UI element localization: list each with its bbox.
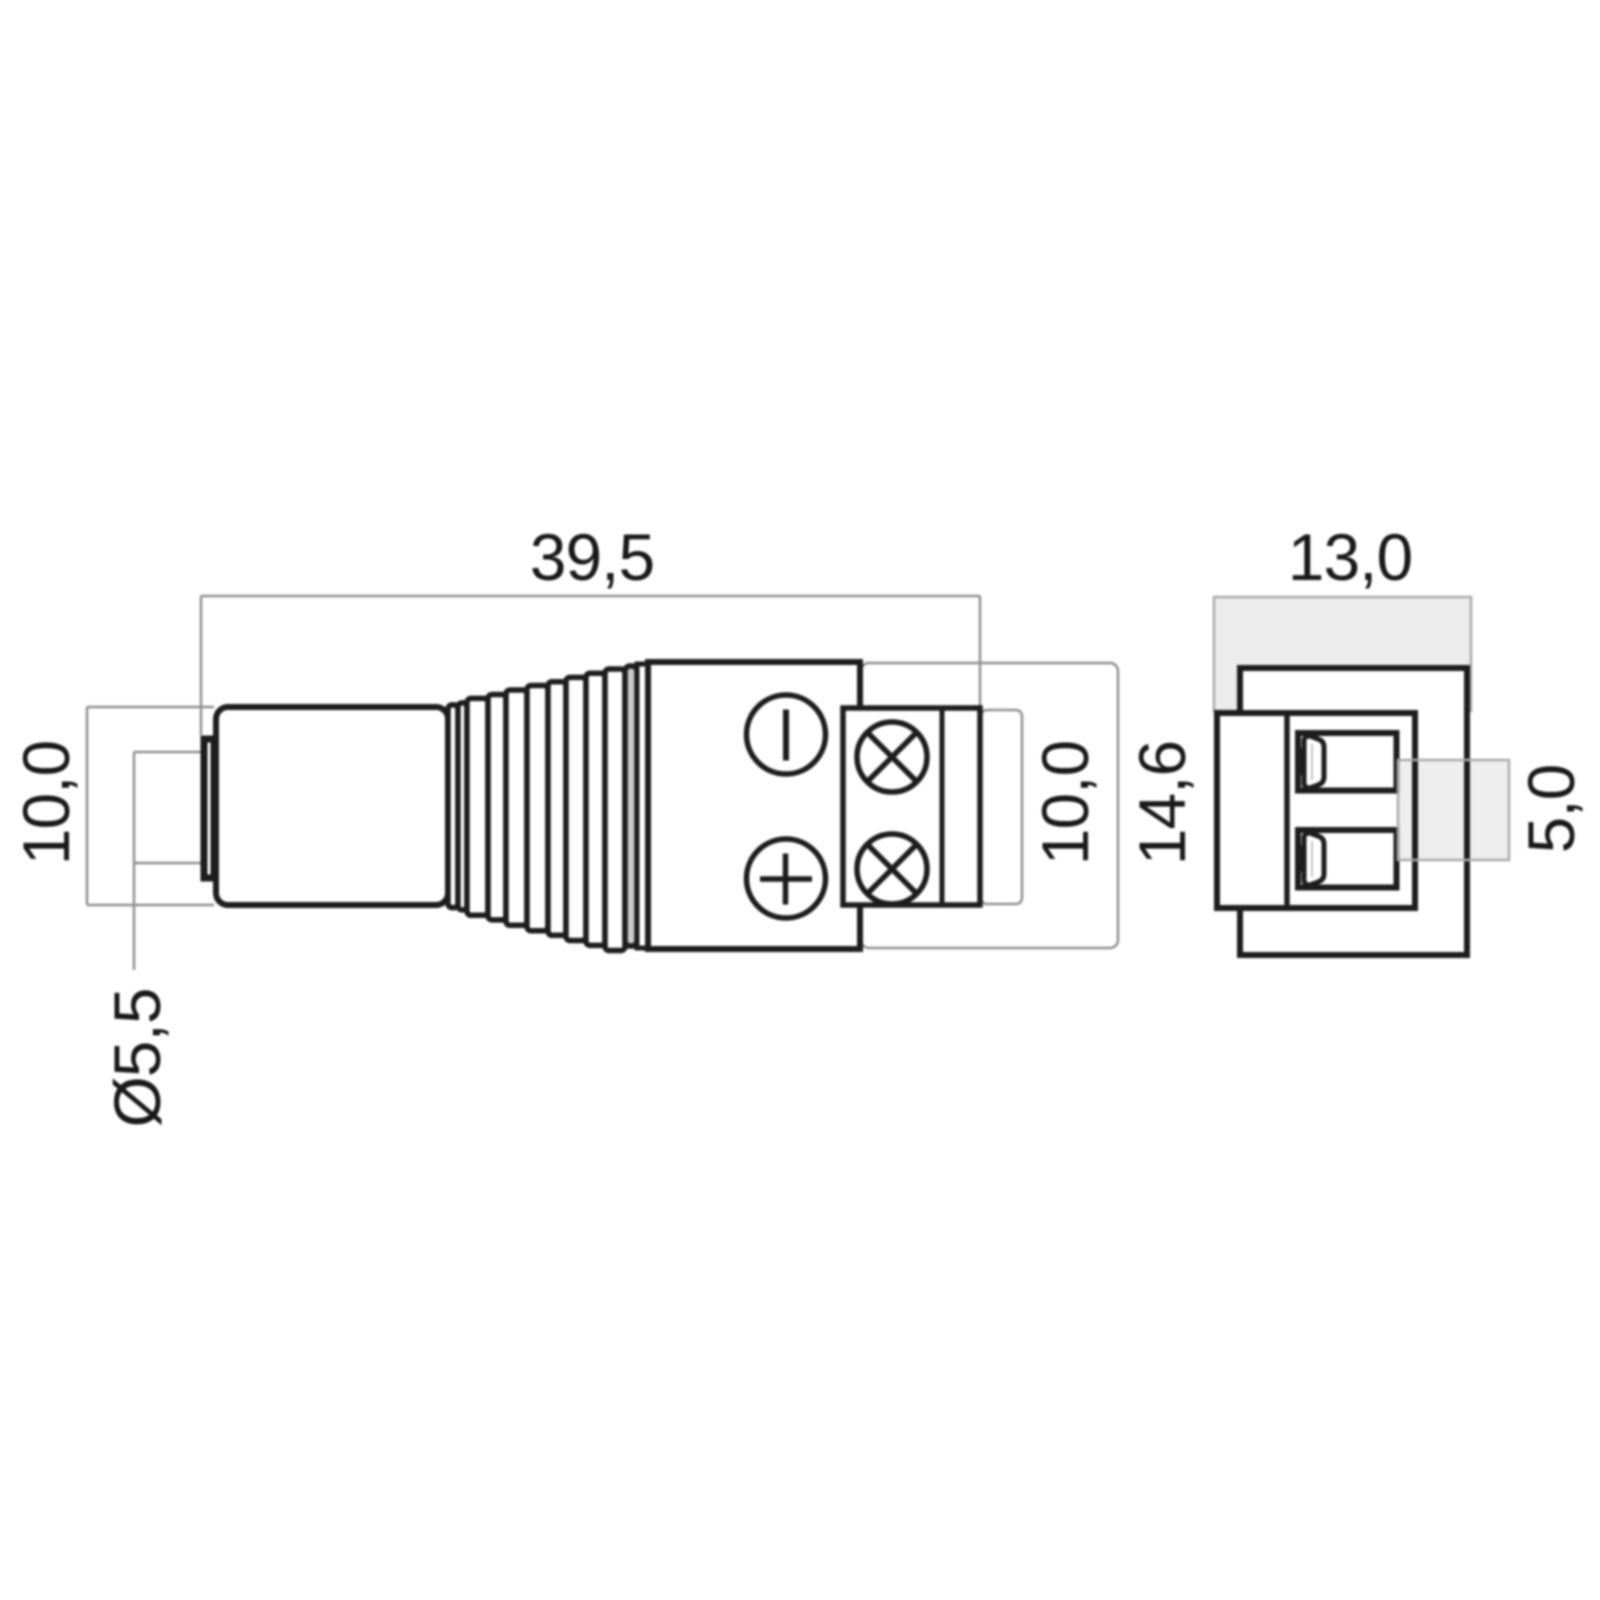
svg-text:13,0: 13,0 [1288, 520, 1412, 594]
svg-text:10,0: 10,0 [9, 741, 83, 865]
svg-text:14,6: 14,6 [1125, 741, 1199, 865]
svg-text:Ø5,5: Ø5,5 [100, 988, 174, 1127]
svg-text:5,0: 5,0 [1514, 765, 1588, 854]
svg-text:10,0: 10,0 [1028, 741, 1102, 865]
svg-text:39,5: 39,5 [530, 520, 654, 594]
